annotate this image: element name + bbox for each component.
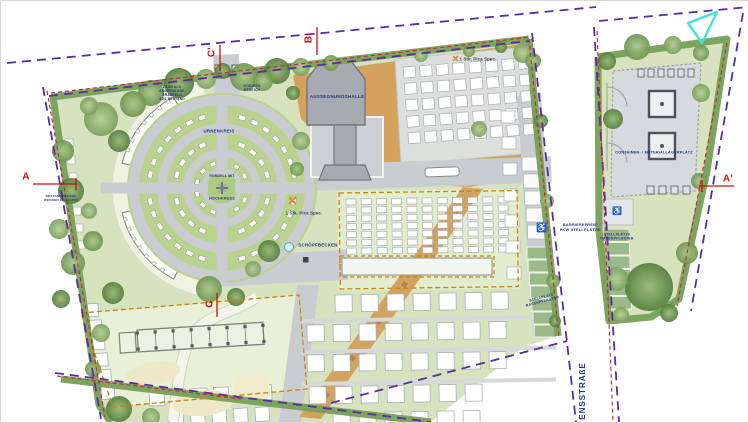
urn-grave-plot	[195, 179, 200, 185]
strip-bed	[342, 258, 492, 275]
wheelchair-icon: ♿	[612, 207, 622, 216]
grave-plot	[465, 384, 482, 401]
grave-plot	[441, 129, 454, 141]
urn-grave-plot	[195, 191, 200, 197]
post	[261, 324, 264, 327]
grave-plot	[438, 222, 448, 228]
grave-plot	[346, 232, 356, 238]
fence-note: ZAUN ALS ABGRENZUNG GRABFELD AUS BESTAND	[149, 85, 195, 101]
grave-plot	[455, 95, 468, 107]
grave-plot	[438, 97, 451, 109]
grave-plot	[469, 61, 482, 73]
grave-plot	[437, 198, 447, 204]
grave-plot	[403, 66, 416, 78]
tree-canopy	[525, 53, 541, 69]
grave-plot	[483, 246, 493, 252]
grave-plot	[440, 113, 453, 125]
grave-plot	[385, 353, 402, 370]
grave-plot	[483, 222, 493, 228]
grave-plot	[362, 248, 372, 254]
grave-plot	[423, 247, 433, 253]
grave-plot	[377, 207, 387, 213]
grave-plot	[407, 198, 417, 204]
grave-plot	[405, 99, 418, 111]
tree-canopy	[664, 36, 682, 54]
section-marker-b-prime: B'	[304, 33, 315, 43]
grave-plot	[347, 240, 357, 246]
tree-canopy	[692, 84, 710, 102]
bin	[671, 186, 678, 194]
parking-parcel-label: STELLPLÄTZE RASENPFLASTER	[597, 233, 637, 242]
grave-plot	[498, 230, 508, 236]
spoke-path	[217, 95, 228, 175]
bin	[659, 186, 666, 194]
grave-plot	[468, 214, 478, 220]
basin-symbol	[285, 243, 294, 252]
accessible-parking-label: BARRIEREFREIE PKW STELLPLÄTZE	[557, 223, 603, 233]
grave-plot	[438, 239, 448, 245]
grave-plot	[424, 131, 437, 143]
grave-plot	[463, 322, 480, 339]
grave-plot	[488, 93, 501, 105]
grave-plot	[485, 60, 498, 72]
site-plan: AUSSEGNUNGSHALLE URNENKREIS RONDELL MIT …	[0, 0, 748, 423]
tree-canopy	[292, 132, 310, 150]
grave-plot	[362, 240, 372, 246]
grave-plot	[437, 411, 454, 422]
bin	[678, 69, 684, 77]
post	[136, 347, 139, 350]
grave-plot	[453, 206, 463, 212]
post	[243, 325, 246, 328]
grave-plot	[423, 114, 436, 126]
urn-circle-label: URNENKREIS	[203, 128, 234, 134]
hall-building	[307, 61, 365, 125]
grave-plot	[413, 385, 430, 402]
bin	[658, 69, 664, 77]
grave-plot	[468, 197, 478, 203]
tree-canopy	[660, 304, 678, 322]
post	[171, 329, 174, 332]
grave-plot	[392, 206, 402, 212]
grave-plot	[346, 223, 356, 229]
grave-plot	[359, 324, 376, 341]
grave-plot	[392, 198, 402, 204]
grave-plot	[411, 353, 428, 370]
section-marker-a: A	[22, 172, 30, 183]
tree-canopy	[196, 276, 222, 302]
grave-plot	[411, 323, 428, 340]
grave-plot	[439, 293, 456, 310]
bin	[638, 69, 644, 77]
grave-plot	[407, 231, 417, 237]
post	[153, 330, 156, 333]
grave-plot	[377, 215, 387, 221]
post	[226, 342, 229, 345]
grave-plot	[392, 231, 402, 237]
tree-canopy	[598, 52, 616, 70]
tree-canopy	[603, 109, 623, 129]
tree-canopy	[52, 290, 70, 308]
container-yard-label: CONTAINER- / MATERIALLAGERPLATZ	[615, 151, 693, 156]
grave-plot	[361, 199, 371, 205]
parking-parcel-line: RASENPFLASTER	[597, 237, 637, 241]
section-marker-a-prime: A'	[723, 174, 733, 185]
tree-canopy	[549, 315, 561, 327]
grave-plot	[407, 239, 417, 245]
bin	[668, 69, 674, 77]
grave-plot	[346, 199, 356, 205]
trees-note: BESTANDSBÄUME WERDEN ERHALTEN	[39, 195, 83, 203]
tree-canopy	[625, 263, 673, 311]
grave-plot	[376, 198, 386, 204]
grave-plot	[392, 215, 402, 221]
grave-plot	[437, 322, 454, 339]
tree-canopy	[92, 324, 110, 342]
grave-plot	[489, 109, 502, 121]
tree-spec-label-top: 1 Stk. Pica Spec.	[460, 56, 497, 61]
tree-canopy	[81, 203, 97, 219]
grave-plot	[255, 407, 270, 422]
tree-canopy	[286, 86, 300, 100]
grave-plot	[452, 197, 462, 203]
grave-plot	[436, 64, 449, 76]
grave-plot	[437, 206, 447, 212]
tree-canopy	[245, 261, 261, 277]
grave-plot	[73, 207, 81, 215]
grave-plot	[471, 94, 484, 106]
parking-stall-grass	[534, 325, 556, 337]
grave-plot	[438, 230, 448, 236]
grave-plot	[483, 230, 493, 236]
grave-plot	[503, 75, 516, 87]
grave-plot	[468, 246, 478, 252]
grave-plot	[439, 384, 456, 401]
tree-canopy	[495, 41, 507, 53]
grave-plot	[465, 292, 482, 309]
grave-plot	[503, 163, 517, 175]
grave-plot	[419, 65, 432, 77]
tree-spec-label-circle: 1 Stk. Pica Spec.	[286, 210, 323, 215]
grave-plot	[362, 223, 372, 229]
grave-plot	[498, 205, 508, 211]
niche	[123, 217, 127, 221]
grave-plot	[483, 213, 493, 219]
grave-plot	[385, 323, 402, 340]
perennial-note: STAUDEN BEREICH	[235, 84, 269, 92]
grave-plot	[483, 238, 493, 244]
grave-plot	[333, 354, 350, 371]
spoke-path	[235, 183, 307, 194]
grave-plot	[361, 294, 378, 311]
bin	[683, 186, 690, 194]
grave-plot	[422, 231, 432, 237]
grave-plot	[392, 223, 402, 229]
grave-plot	[362, 231, 372, 237]
grave-plot	[392, 239, 402, 245]
grave-plot	[507, 267, 521, 279]
wheelchair-icon: ♿	[536, 223, 547, 234]
grave-plot	[437, 352, 454, 369]
post	[190, 344, 193, 347]
grave-plot	[437, 214, 447, 220]
grave-plot	[377, 231, 387, 237]
post	[244, 341, 247, 344]
pump-symbol	[303, 257, 309, 263]
grave-plot	[422, 198, 432, 204]
grave-plot	[468, 230, 478, 236]
fence-note-line: AUS BESTAND	[149, 97, 195, 101]
tree-canopy	[624, 34, 650, 60]
post	[208, 343, 211, 346]
grave-plot	[454, 79, 467, 91]
grave-plot	[408, 132, 421, 144]
post	[172, 345, 175, 348]
grave-plot	[346, 215, 356, 221]
grave-plot	[407, 115, 420, 127]
grave-plot	[437, 80, 450, 92]
grave-plot	[487, 76, 500, 88]
grave-plot	[457, 128, 470, 140]
tree-canopy	[108, 130, 130, 152]
urn-grave-plot	[147, 171, 153, 179]
grave-plot	[453, 247, 463, 253]
grave-plot	[463, 352, 480, 369]
trees-note-line: WERDEN ERHALTEN	[39, 199, 83, 203]
grave-plot	[309, 387, 326, 404]
grave-plot	[504, 92, 517, 104]
grave-plot	[470, 78, 483, 90]
perennial-note-line: BEREICH	[235, 88, 269, 92]
grave-plot	[507, 124, 520, 136]
tree-canopy	[258, 240, 280, 262]
container-yard	[611, 63, 701, 197]
grave-plot	[468, 238, 478, 244]
bin	[648, 69, 654, 77]
circle-center-label-top: RONDELL MIT	[209, 174, 234, 178]
grave-plot	[413, 293, 430, 310]
grave-plot	[377, 239, 387, 245]
post	[135, 331, 138, 334]
container-dot	[660, 102, 664, 106]
tree-canopy	[290, 162, 304, 176]
bench	[425, 167, 459, 177]
tree-canopy	[102, 282, 124, 304]
grave-plot	[422, 214, 432, 220]
grave-plot	[361, 215, 371, 221]
grave-plot	[377, 223, 387, 229]
container-dot	[660, 144, 664, 148]
grave-plot	[453, 214, 463, 220]
tree-canopy	[80, 97, 98, 115]
bin	[688, 69, 694, 77]
grave-plot	[438, 247, 448, 253]
grave-plot	[483, 197, 493, 203]
basin-label: SCHÖPFBECKEN	[298, 242, 337, 248]
hall-building-base	[319, 165, 371, 180]
grave-plot	[407, 214, 417, 220]
tree-canopy	[613, 307, 629, 323]
grave-plot	[453, 222, 463, 228]
long-building-annex	[119, 332, 136, 353]
grave-plot	[502, 137, 516, 149]
grave-plot	[387, 294, 404, 311]
circle-center-label-bottom: HOCHKREUZ	[209, 197, 235, 202]
grave-plot	[501, 111, 515, 123]
parking-stall-grass	[528, 260, 550, 272]
grave-plot	[468, 205, 478, 211]
spoke-path	[217, 203, 228, 283]
grave-plot	[423, 239, 433, 245]
grave-plot	[422, 98, 435, 110]
grave-plot	[491, 292, 508, 309]
grave-plot	[463, 410, 480, 422]
grave-plot	[307, 355, 324, 372]
grave-plot	[404, 83, 417, 95]
grave-plot	[359, 354, 376, 371]
grave-plot	[453, 230, 463, 236]
grave-plot	[452, 62, 465, 74]
tree-canopy	[693, 45, 709, 61]
grave-plot	[483, 205, 493, 211]
grave-plot	[489, 322, 506, 339]
grave-plot	[346, 207, 356, 213]
site-plan-drawing	[1, 1, 748, 422]
section-marker-c-prime: C'	[207, 47, 218, 57]
grave-plot	[377, 248, 387, 254]
hall-building-stem	[334, 125, 356, 167]
spoke-path	[101, 183, 208, 194]
grave-plot	[422, 206, 432, 212]
grave-plot	[456, 112, 469, 124]
grave-plot	[422, 222, 432, 228]
hall-label: AUSSEGNUNGSHALLE	[310, 94, 365, 100]
tree-canopy	[83, 231, 103, 251]
bin	[647, 186, 654, 194]
grave-plot	[468, 222, 478, 228]
grave-plot	[307, 325, 324, 342]
urn-grave-plot	[147, 198, 153, 206]
grave-plot	[407, 247, 417, 253]
grave-plot	[473, 111, 486, 123]
post	[154, 346, 157, 349]
grave-plot	[233, 408, 248, 422]
grave-plot	[453, 238, 463, 244]
grave-plot	[407, 206, 417, 212]
street-name: ENSSTRAßE	[578, 362, 588, 419]
post	[262, 340, 265, 343]
post	[225, 326, 228, 329]
tree-canopy	[52, 140, 74, 162]
tree-canopy	[471, 121, 487, 137]
grave-plot	[347, 248, 357, 254]
boundary-purple-dashed	[599, 7, 748, 21]
grave-plot	[490, 126, 503, 138]
grave-plot	[333, 324, 350, 341]
post	[207, 327, 210, 330]
grave-plot	[407, 223, 417, 229]
grave-plot	[361, 207, 371, 213]
grave-plot	[392, 247, 402, 253]
section-marker-c: C	[205, 300, 216, 308]
tree-canopy	[227, 288, 245, 306]
post	[189, 328, 192, 331]
grave-plot	[335, 295, 352, 312]
tree-canopy	[120, 91, 146, 117]
grave-plot	[502, 59, 515, 71]
grave-plot	[421, 81, 434, 93]
